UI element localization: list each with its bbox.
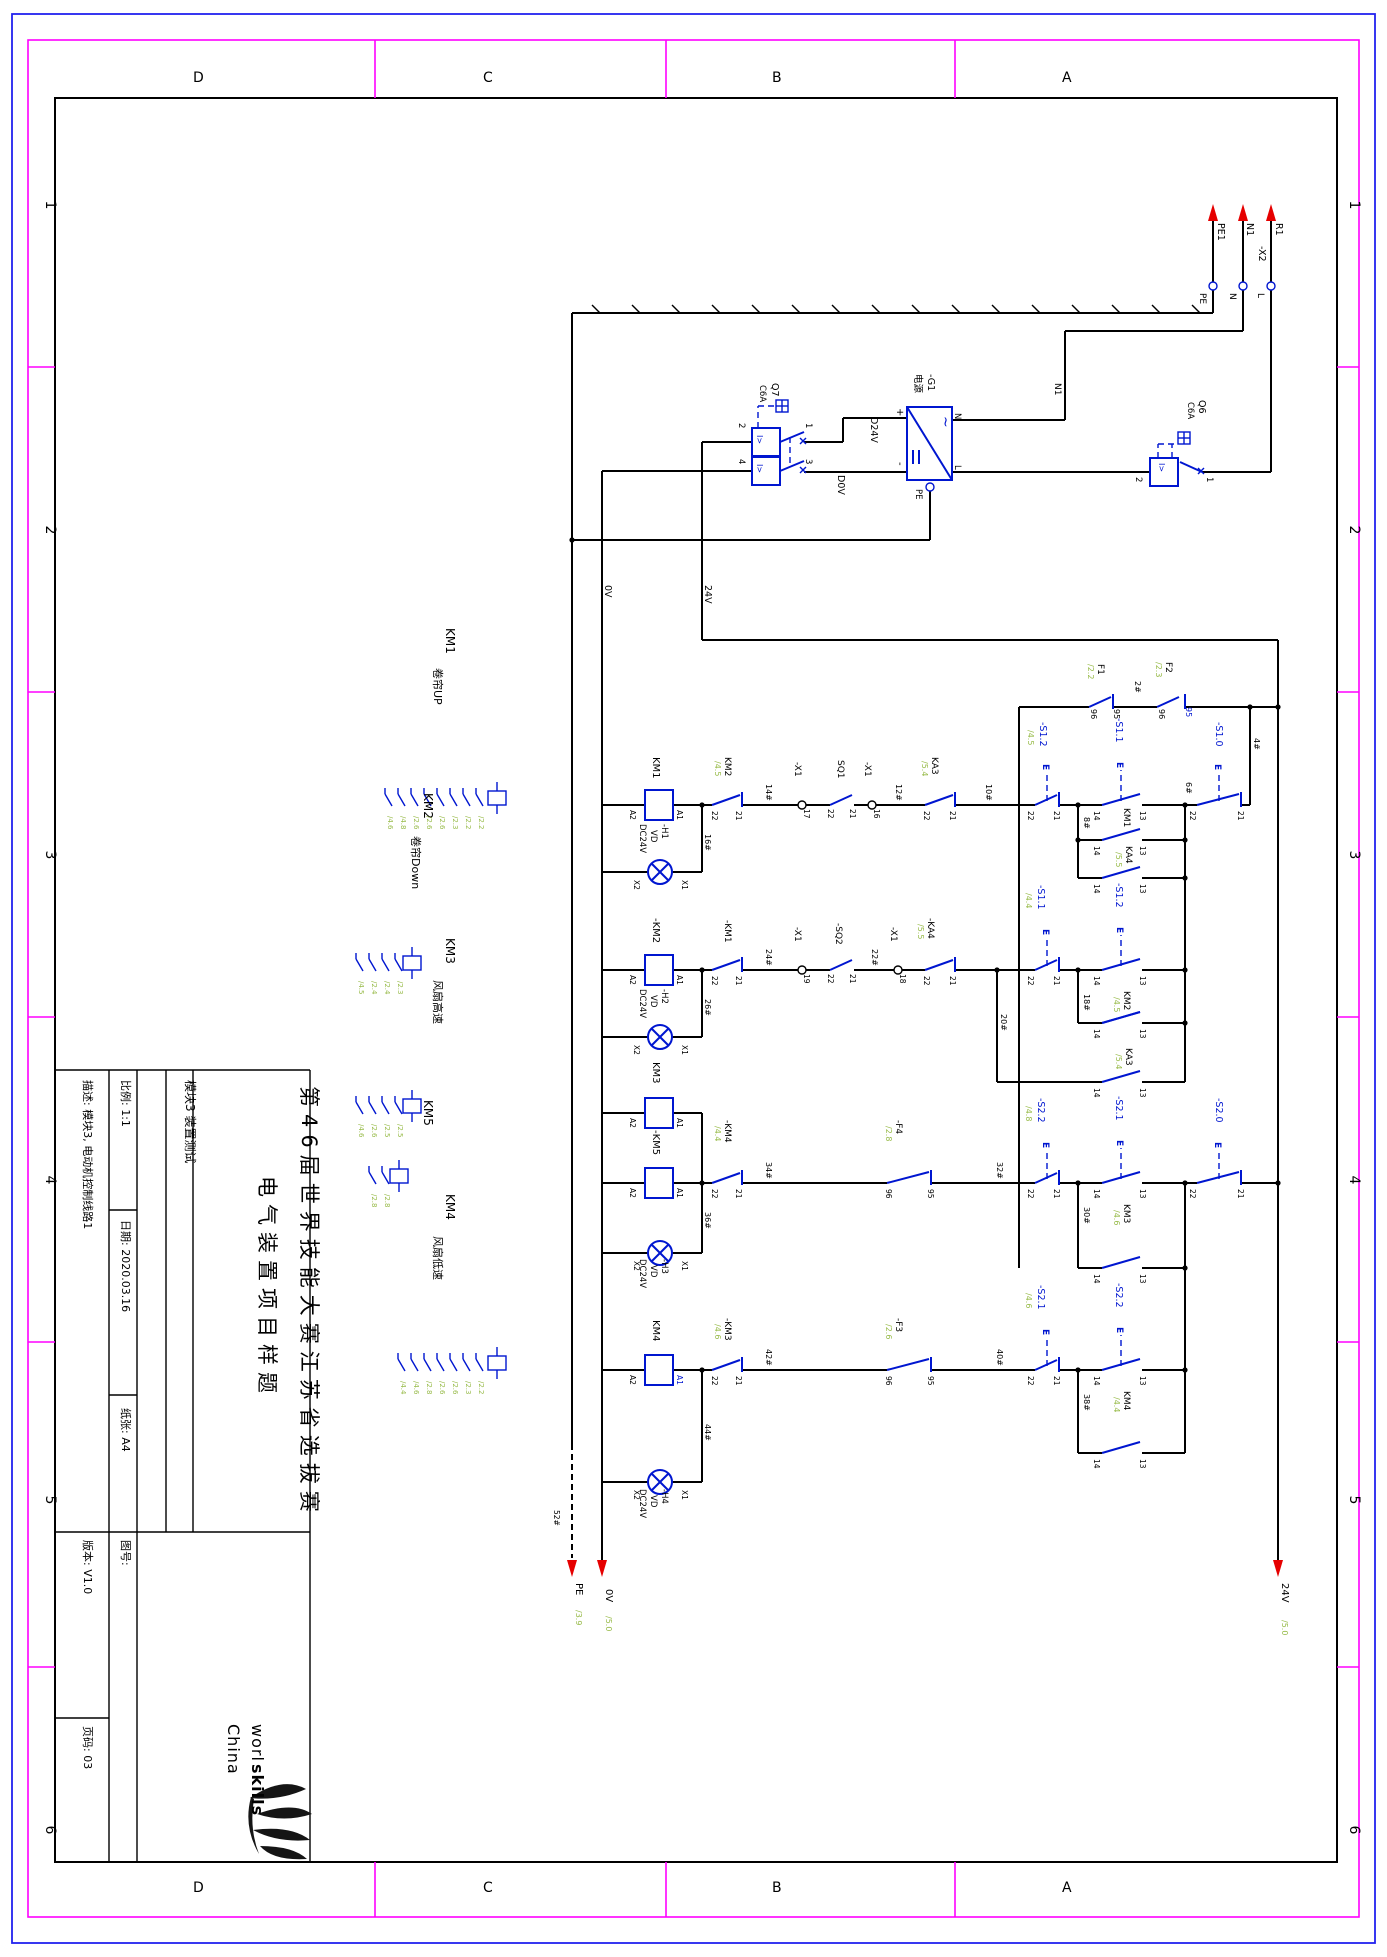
prot-f2-t-1: 95 <box>1184 707 1193 717</box>
frame-rows-2: 3 <box>42 851 58 860</box>
sym-breaker: I> <box>755 464 764 473</box>
rungs-3-a1: A1 <box>675 1375 684 1385</box>
rungs-0-self-a: 14 <box>1092 846 1101 856</box>
rungs-2-lamp-x2: X2 <box>632 1261 641 1271</box>
mirrors-4-name: KM4 <box>443 1194 457 1220</box>
prot-wire2: 2# <box>1133 681 1142 693</box>
rungs-1-a2: A2 <box>628 975 637 985</box>
mirrors-3-refs-1: /2.8 <box>383 1194 391 1208</box>
rungs-2-snc-ref: /4.8 <box>1024 1106 1033 1121</box>
rungs-2-f-a: 96 <box>884 1189 893 1199</box>
rungs-2-w_self: 30# <box>1082 1207 1091 1224</box>
sym-e: E <box>1212 764 1222 770</box>
mirrors-3-refs-0: /2.8 <box>370 1194 378 1208</box>
rungs-2-self-b: 13 <box>1138 1274 1147 1284</box>
rungs-3-self-ref: /4.4 <box>1112 1397 1121 1412</box>
rungs-0-t2-pin: 16 <box>872 809 881 819</box>
rungs-1-t2-name: -X1 <box>888 927 898 942</box>
supply-out_minus: D0V <box>835 475 846 495</box>
mirrors-4-refs-0: /4.4 <box>399 1381 407 1395</box>
tb-drawing_no: 图号: <box>119 1540 132 1566</box>
supply-n1: N1 <box>1052 383 1062 395</box>
frame-cols-0: D <box>193 1880 204 1896</box>
rungs-0-snc-b: 21 <box>1052 811 1061 821</box>
supply-q6-rating: C6A <box>1185 402 1195 419</box>
tb-scale: 比例: 1:1 <box>119 1080 133 1127</box>
logo-word3: China <box>224 1724 243 1775</box>
rungs-2-f-b: 95 <box>926 1189 935 1199</box>
tb-title1: 第46届世界技能大赛江苏省选拔赛 <box>297 1086 321 1519</box>
mirrors-3-name: KM5 <box>421 1100 435 1126</box>
rungs-2-lamp-name: -H3 <box>659 1259 669 1274</box>
supply-q7-t-0: 1 <box>803 423 813 428</box>
rungs-2-sno-b: 13 <box>1138 1189 1147 1199</box>
tb-title2: 电气装置项目样题 <box>255 1176 279 1400</box>
prot-wire4: 4# <box>1252 738 1261 750</box>
rungs-3-w_self: 38# <box>1082 1394 1091 1411</box>
rungs-1-w_lamp: 26# <box>703 999 712 1016</box>
rungs-1-lamp-x1: X1 <box>680 1045 689 1055</box>
mirrors-4-refs-3: /2.6 <box>438 1381 446 1395</box>
rungs-1-ka-ref: /5.5 <box>916 924 925 939</box>
prot-f1-t-0: 96 <box>1089 709 1098 719</box>
frame-rows-1: 2 <box>42 526 58 535</box>
tb-paper: 纸张: A4 <box>119 1408 132 1452</box>
rungs-1-ka2-ref: /5.4 <box>1114 1054 1123 1069</box>
rungs-1-self-name: KM2 <box>1121 991 1131 1010</box>
mirrors-2-name: KM3 <box>443 938 457 964</box>
schematic-canvas: DCBADCBA123456123456模块3 装置测试比例: 1:1日期: 2… <box>0 0 1387 1957</box>
rungs-2-nc1-b: 21 <box>734 1189 743 1199</box>
rungs-0-ka2-name: KA4 <box>1123 846 1133 864</box>
frame-rows-0: 1 <box>42 201 58 210</box>
supply-g1-minus: - <box>894 462 905 466</box>
rungs-1-ka-b: 21 <box>948 976 957 986</box>
rungs-1-sno-b: 13 <box>1138 976 1147 986</box>
rungs-3-f-b: 95 <box>926 1376 935 1386</box>
rungs-2-wA: 34# <box>764 1162 773 1179</box>
rungs-1-sq-a: 22 <box>826 974 835 984</box>
supply-q6-name: Q6 <box>1196 400 1207 414</box>
rungs-1-ka2-b: 13 <box>1138 1088 1147 1098</box>
rungs-0-lamp-name: -H1 <box>659 824 669 839</box>
rungs-3-wA: 42# <box>764 1349 773 1366</box>
rungs-2-lamp-type: VD <box>648 1265 658 1278</box>
rungs-0-wC: 10# <box>984 784 993 801</box>
rungs-3-lamp-x2: X2 <box>632 1490 641 1500</box>
rungs-1-coil: -KM2 <box>650 918 661 943</box>
rungs-1-snc-ref: /4.4 <box>1024 893 1033 908</box>
wire_pe: 52# <box>552 1510 561 1526</box>
rungs-1-a1: A1 <box>675 975 684 985</box>
supply-g1-pe: PE <box>913 489 923 500</box>
rungs-2-self-ref: /4.6 <box>1112 1210 1121 1225</box>
rungs-3-wB: 40# <box>995 1349 1004 1366</box>
mirrors-1-refs-3: /2.3 <box>396 981 404 995</box>
rungs-1-lamp-name: -H2 <box>659 989 669 1004</box>
circuit-component-symbols <box>356 282 1275 1494</box>
rungs-3-sno-b: 13 <box>1138 1376 1147 1386</box>
tb-page: 页码: 03 <box>81 1726 94 1769</box>
rungs-0-t2-name: -X1 <box>862 762 872 777</box>
rungs-0-stop-name: -S1.0 <box>1213 722 1224 747</box>
mirrors-1-refs-2: /2.4 <box>383 981 391 995</box>
rungs-1-ka2-name: KA3 <box>1123 1048 1133 1066</box>
mirrors-4-refs-1: /4.6 <box>412 1381 420 1395</box>
rungs-0-ka-ref: /5.4 <box>920 761 929 776</box>
rungs-1-self-b: 13 <box>1138 1029 1147 1039</box>
sym-e: E <box>1040 929 1050 935</box>
supply-wires-1: N1 <box>1244 223 1255 236</box>
rungs-1-t1-pin: 19 <box>802 974 811 984</box>
mirrors-0-refs-0: /4.6 <box>386 816 394 830</box>
supply-x2: -X2 <box>1256 246 1267 262</box>
supply-rail24: 24V <box>702 585 713 604</box>
frame-cols-2: B <box>772 70 782 86</box>
rungs-0-stop-a: 22 <box>1188 811 1197 821</box>
mirrors-2-refs-3: /2.5 <box>396 1124 404 1138</box>
rungs-0-ka-b: 21 <box>948 811 957 821</box>
rungs-1-lamp-type: VD <box>648 995 658 1008</box>
rungs-3-a2: A2 <box>628 1375 637 1385</box>
sheet-borders <box>12 14 1375 1943</box>
frame-cols-3: A <box>1062 70 1072 86</box>
rungs-1-lamp-volt: DC24V <box>637 989 647 1018</box>
rungs-0-a1: A1 <box>675 810 684 820</box>
mirrors-0-name: KM1 <box>443 628 457 654</box>
mirrors-0-refs-3: /2.6 <box>425 816 433 830</box>
rungs-1-function: 卷帘Down <box>409 836 423 889</box>
rungs-1-sq-b: 21 <box>848 974 857 984</box>
tb-desc: 描述: 模块3, 电动机控制线路1 <box>81 1080 95 1229</box>
rungs-0-lamp-x1: X1 <box>680 880 689 890</box>
sym-e: E <box>1212 1142 1222 1148</box>
rungs-1-ka-a: 22 <box>922 976 931 986</box>
mirrors-2-refs-2: /2.5 <box>383 1124 391 1138</box>
rungs-0-ka2-a: 14 <box>1092 884 1101 894</box>
rungs-0-w_lamp: 16# <box>703 834 712 851</box>
rungs-2-f-name: -F4 <box>893 1120 903 1134</box>
sym-breaker: I> <box>755 435 764 444</box>
rungs-0-lamp-volt: DC24V <box>637 824 647 853</box>
rungs-1-nc1-name: -KM1 <box>722 920 732 943</box>
supply-wires-0: PE1 <box>1215 223 1226 241</box>
rungs-3-nc1-b: 21 <box>734 1376 743 1386</box>
rungs-2-a1: A1 <box>675 1188 684 1198</box>
logo-word2: skills <box>248 1764 267 1816</box>
rungs-2-wB: 32# <box>995 1162 1004 1179</box>
rungs-2-snc-a: 22 <box>1026 1189 1035 1199</box>
rungs-2-nc1-a: 22 <box>710 1189 719 1199</box>
rungs-2-nc1-name: -KM4 <box>722 1120 732 1143</box>
rungs-1-sno-a: 14 <box>1092 976 1101 986</box>
rungs-3-snc-b: 21 <box>1052 1376 1061 1386</box>
rungs-2-a2: A2 <box>628 1118 637 1128</box>
mirrors-2-refs-0: /4.6 <box>357 1124 365 1138</box>
rungs-0-t1-name: -X1 <box>792 762 802 777</box>
rungs-3-lamp-x1: X1 <box>680 1490 689 1500</box>
rungs-1-sno-name: -S1.2 <box>1113 883 1124 908</box>
rungs-0-nc1-ref: /4.5 <box>713 761 722 776</box>
rungs-0-stop-b: 21 <box>1236 811 1245 821</box>
rungs-3-self-a: 14 <box>1092 1459 1101 1469</box>
rungs-2-snc-name: -S2.2 <box>1035 1098 1046 1123</box>
supply-q6-t-1: 2 <box>1133 477 1143 482</box>
sym-e: E <box>1040 764 1050 770</box>
mirrors-4-refs-2: /2.8 <box>425 1381 433 1395</box>
sym-e: E <box>1040 1142 1050 1148</box>
rungs-2-sno-a: 14 <box>1092 1189 1101 1199</box>
rungs-2-f-ref: /2.8 <box>884 1126 893 1141</box>
rungs-0-sno-a: 14 <box>1092 811 1101 821</box>
supply-wires-2: R1 <box>1273 223 1284 236</box>
rungs-2-nc1-ref: /4.4 <box>713 1126 722 1141</box>
frame-cols-3: A <box>1062 1880 1072 1896</box>
rungs-0-snc-a: 22 <box>1026 811 1035 821</box>
rungs-3-coil: KM4 <box>650 1320 661 1342</box>
mirrors-0-refs-2: /2.6 <box>412 816 420 830</box>
rungs-1-sq-name: -SQ2 <box>833 923 843 945</box>
rungs-0-wB: 12# <box>894 784 903 801</box>
supply-q7-t-3: 4 <box>736 459 746 464</box>
rungs-1-t1-name: -X1 <box>792 927 802 942</box>
schematic-sheet: DCBADCBA123456123456模块3 装置测试比例: 1:1日期: 2… <box>0 0 1387 1957</box>
exits-0-ref: /3.9 <box>574 1610 583 1625</box>
rungs-1-w_self: 18# <box>1082 994 1091 1011</box>
rungs-0-snc-ref: /4.5 <box>1026 730 1035 745</box>
tb-module: 模块3 装置测试 <box>183 1080 198 1163</box>
rungs-2-w_lamp: 36# <box>703 1212 712 1229</box>
rungs-0-snc-name: -S1.2 <box>1037 722 1048 747</box>
rungs-2-lamp-x1: X1 <box>680 1261 689 1271</box>
supply-q7-name: Q7 <box>769 383 780 397</box>
frame-rows-2: 3 <box>1346 851 1362 860</box>
rungs-0-nc1-a: 22 <box>710 811 719 821</box>
exits-2-label: 24V <box>1279 1583 1290 1603</box>
sym-e: E <box>1114 762 1124 768</box>
rungs-2-stop-a: 22 <box>1188 1189 1197 1199</box>
rungs-1-lamp-x2: X2 <box>632 1045 641 1055</box>
rungs-3-lamp-name: -H4 <box>659 1489 669 1504</box>
prot-f2-ref: /2.3 <box>1154 662 1163 677</box>
tb-version: 版本: V1.0 <box>81 1540 95 1594</box>
rungs-3-sno-a: 14 <box>1092 1376 1101 1386</box>
mirrors-4-refs-4: /2.6 <box>451 1381 459 1395</box>
supply-out_plus: D24V <box>868 417 879 443</box>
rungs-1-nc1-a: 22 <box>710 976 719 986</box>
mirrors-0-refs-5: /2.3 <box>451 816 459 830</box>
mirrors-0-refs-1: /4.8 <box>399 816 407 830</box>
rungs-0-self-name: KM1 <box>1121 808 1131 827</box>
frame-rows-5: 6 <box>1346 1826 1362 1835</box>
rungs-3-f-name: -F3 <box>893 1318 903 1332</box>
rungs-3-f-ref: /2.6 <box>884 1324 893 1339</box>
supply-g1-l: L <box>952 465 962 470</box>
rungs-1-ka-name: -KA4 <box>925 918 935 939</box>
frame-cols-1: C <box>483 1880 493 1896</box>
sym-e: E <box>1114 1140 1124 1146</box>
rungs-1-wA: 24# <box>764 949 773 966</box>
rungs-3-nc1-name: -KM3 <box>722 1318 732 1341</box>
exits-1-label: 0V <box>603 1589 614 1602</box>
rungs-3-nc1-a: 22 <box>710 1376 719 1386</box>
prot-f2-t-0: 96 <box>1157 709 1166 719</box>
rungs-3-lamp-type: VD <box>648 1495 658 1508</box>
rungs-0-wA: 14# <box>764 784 773 801</box>
rungs-2-a2: A2 <box>628 1188 637 1198</box>
sym-e: E <box>1114 1327 1124 1333</box>
rungs-2-self-a: 14 <box>1092 1274 1101 1284</box>
rungs-3-sno-name: -S2.2 <box>1113 1283 1124 1308</box>
rungs-0-lamp-x2: X2 <box>632 880 641 890</box>
mirrors-1-name: KM2 <box>421 793 435 819</box>
rungs-1-t2-pin: 18 <box>898 974 907 984</box>
rungs-1-self-ref: /4.5 <box>1112 997 1121 1012</box>
rungs-3-snc-ref: /4.6 <box>1024 1293 1033 1308</box>
rungs-1-wC: 20# <box>999 1014 1008 1031</box>
supply-q6-t-0: 1 <box>1204 477 1214 482</box>
logo-word1: worl <box>248 1724 267 1762</box>
rungs-0-w_out: 6# <box>1184 782 1193 794</box>
frame-rows-0: 1 <box>1346 201 1362 210</box>
frame-cols-2: B <box>772 1880 782 1896</box>
rungs-2-stop-name: -S2.0 <box>1213 1098 1224 1123</box>
supply-g1-desc: 电源 <box>912 374 924 394</box>
supply-q7-t-1: 2 <box>736 423 746 428</box>
rungs-0-ka-name: KA3 <box>929 757 939 775</box>
rungs-0-sq-name: SQ1 <box>835 760 845 779</box>
rungs-0-sno-name: -S1.1 <box>1113 718 1124 743</box>
rungs-0-ka2-b: 13 <box>1138 884 1147 894</box>
rungs-2-coil2: -KM5 <box>650 1130 661 1155</box>
mirrors-4-refs-6: /2.2 <box>477 1381 485 1395</box>
rungs-2-snc-b: 21 <box>1052 1189 1061 1199</box>
rungs-0-self-b: 13 <box>1138 846 1147 856</box>
sym-e: E <box>1114 927 1124 933</box>
frame-cols-1: C <box>483 70 493 86</box>
mirrors-1-refs-1: /2.4 <box>370 981 378 995</box>
sym-breaker: I> <box>1157 463 1166 472</box>
sym-e: E <box>1040 1329 1050 1335</box>
exits-1-ref: /5.0 <box>604 1616 613 1631</box>
rungs-0-sno-b: 13 <box>1138 811 1147 821</box>
exits-0-label: PE <box>573 1583 584 1595</box>
frame-rows-3: 4 <box>42 1176 58 1185</box>
rungs-3-snc-a: 22 <box>1026 1376 1035 1386</box>
rungs-0-sq-b: 21 <box>848 809 857 819</box>
frame-rows-1: 2 <box>1346 526 1362 535</box>
rungs-0-t1-pin: 17 <box>802 809 811 819</box>
rungs-1-self-a: 14 <box>1092 1029 1101 1039</box>
rungs-1-snc-a: 22 <box>1026 976 1035 986</box>
supply-g1-name: -G1 <box>925 374 936 391</box>
frame-rows-4: 5 <box>42 1496 58 1505</box>
frame-rows-3: 4 <box>1346 1176 1362 1185</box>
rungs-3-self-b: 13 <box>1138 1459 1147 1469</box>
frame-rows-4: 5 <box>1346 1496 1362 1505</box>
prot-f1-ref: /2.2 <box>1086 664 1095 679</box>
rungs-1-snc-b: 21 <box>1052 976 1061 986</box>
rungs-2-coil: KM3 <box>650 1062 661 1084</box>
prot-f2-name: F2 <box>1163 662 1173 673</box>
rungs-3-w_lamp: 44# <box>703 1424 712 1441</box>
rungs-0-ka-a: 22 <box>922 811 931 821</box>
supply-q7-rating: C6A <box>757 385 767 402</box>
rungs-0-a2: A2 <box>628 810 637 820</box>
mirrors-4-refs-5: /2.3 <box>464 1381 472 1395</box>
rungs-2-stop-b: 21 <box>1236 1189 1245 1199</box>
rungs-2-sno-name: -S2.1 <box>1113 1096 1124 1121</box>
rungs-1-nc1-b: 21 <box>734 976 743 986</box>
supply-terminals-2: L <box>1255 293 1265 298</box>
rungs-1-ka2-a: 14 <box>1092 1088 1101 1098</box>
supply-terminals-1: N <box>1227 293 1237 300</box>
rungs-3-nc1-ref: /4.6 <box>713 1324 722 1339</box>
tb-date: 日期: 2020.03.16 <box>119 1220 132 1312</box>
rungs-0-nc1-b: 21 <box>734 811 743 821</box>
rungs-1-snc-name: -S1.1 <box>1035 885 1046 910</box>
rungs-0-function: 卷帘UP <box>431 668 445 705</box>
mirrors-0-refs-4: /2.6 <box>438 816 446 830</box>
rungs-0-ka2-ref: /5.5 <box>1114 852 1123 867</box>
rungs-3-f-a: 96 <box>884 1376 893 1386</box>
frame-rows-5: 6 <box>42 1826 58 1835</box>
rungs-0-coil: KM1 <box>650 757 661 779</box>
supply-terminals-0: PE <box>1197 293 1207 304</box>
exits-2-ref: /5.0 <box>1280 1620 1289 1635</box>
sym-ac: ~ <box>937 416 953 428</box>
frame-cols-0: D <box>193 70 204 86</box>
rungs-3-snc-name: -S2.1 <box>1035 1285 1046 1310</box>
rungs-0-lamp-type: VD <box>648 830 658 843</box>
rungs-3-function: 风扇低速 <box>431 1236 445 1280</box>
mirrors-1-refs-0: /4.5 <box>357 981 365 995</box>
prot-f1-name: F1 <box>1095 664 1105 675</box>
supply-q7-t-2: 3 <box>803 459 813 464</box>
rungs-2-a1: A1 <box>675 1118 684 1128</box>
supply-g1-plus: + <box>894 408 905 416</box>
mirrors-0-refs-7: /2.2 <box>477 816 485 830</box>
rungs-0-sq-a: 22 <box>826 809 835 819</box>
mirrors-2-refs-1: /2.6 <box>370 1124 378 1138</box>
rungs-2-function: 风扇高速 <box>431 980 445 1024</box>
mirrors-0-refs-6: /2.2 <box>464 816 472 830</box>
supply-rail0: 0V <box>602 585 613 598</box>
rungs-3-self-name: KM4 <box>1121 1391 1131 1411</box>
rungs-2-self-name: KM3 <box>1121 1204 1131 1223</box>
rungs-0-nc1-name: KM2 <box>722 757 732 776</box>
rungs-1-wB: 22# <box>870 949 879 966</box>
rungs-0-w_self: 8# <box>1082 817 1091 829</box>
